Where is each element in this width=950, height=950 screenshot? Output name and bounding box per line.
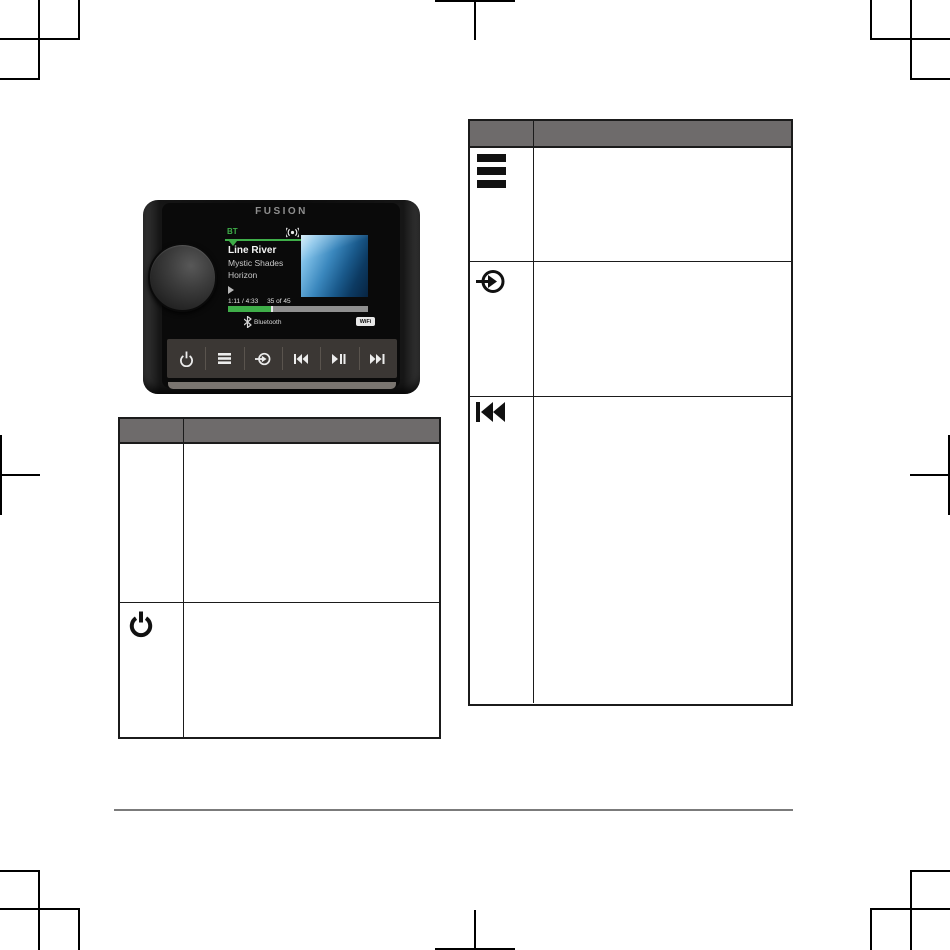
crop-mark	[0, 38, 80, 40]
crop-mark	[870, 0, 872, 40]
skip-back-icon	[476, 402, 505, 422]
play-pause-icon	[332, 354, 346, 364]
device-screen: BT Line River Mystic Shades Horizon 1:11…	[225, 226, 377, 330]
table-header-icon-col	[120, 419, 183, 442]
speaker-icon	[286, 227, 299, 238]
device-button-menu	[205, 339, 243, 378]
source-icon	[476, 267, 506, 296]
progress-bar	[228, 306, 368, 312]
table-cell-icon	[470, 262, 533, 396]
crop-mark	[0, 78, 40, 80]
progress-tick	[271, 306, 273, 312]
crop-mark	[474, 0, 476, 40]
controls-table-left	[118, 417, 441, 739]
crop-mark	[0, 474, 40, 476]
bluetooth-icon	[244, 316, 252, 328]
bluetooth-label: Bluetooth	[254, 319, 281, 326]
menu-icon	[477, 154, 506, 188]
crop-mark	[0, 908, 80, 910]
crop-mark	[910, 474, 950, 476]
volume-knob	[148, 243, 217, 312]
crop-mark	[38, 870, 40, 950]
table-header-row	[120, 419, 439, 444]
table-cell-icon	[470, 397, 533, 703]
device-button-source	[244, 339, 282, 378]
table-cell-icon	[120, 444, 183, 602]
crop-mark	[910, 870, 950, 872]
bluetooth-logo: Bluetooth	[244, 316, 281, 328]
table-header-description-col	[533, 121, 791, 146]
table-row	[120, 603, 439, 737]
device-button-previous	[282, 339, 320, 378]
crop-mark	[910, 0, 912, 80]
track-artist: Mystic Shades	[228, 258, 283, 268]
table-cell-icon	[470, 148, 533, 261]
crop-mark	[0, 870, 40, 872]
play-state-icon	[228, 286, 234, 294]
source-icon	[255, 352, 271, 366]
controls-table-right	[468, 119, 793, 706]
table-cell-description	[183, 444, 439, 602]
device-button-play-pause	[320, 339, 358, 378]
brand-logo: FUSION	[143, 206, 420, 217]
table-header-row	[470, 121, 791, 148]
skip-forward-icon	[370, 354, 385, 364]
table-row	[470, 148, 791, 262]
time-display: 1:11 / 4:33 35 of 45	[228, 298, 291, 305]
crop-mark	[474, 910, 476, 950]
table-row	[470, 262, 791, 397]
table-cell-description	[183, 603, 439, 737]
crop-mark	[38, 0, 40, 80]
table-row	[120, 444, 439, 603]
crop-mark	[870, 38, 950, 40]
screen-progress-fill	[228, 306, 271, 312]
crop-mark	[910, 78, 950, 80]
table-header-icon-col	[470, 121, 533, 146]
device-figure: FUSION BT Line River Mystic Shades Horiz…	[143, 200, 420, 394]
track-album: Horizon	[228, 270, 257, 280]
power-icon	[179, 351, 194, 367]
crop-mark	[870, 908, 872, 950]
time-elapsed-total: 1:11 / 4:33	[228, 298, 258, 305]
skip-back-icon	[294, 354, 308, 364]
manual-page: FUSION BT Line River Mystic Shades Horiz…	[0, 0, 950, 950]
table-cell-description	[533, 262, 791, 396]
table-header-description-col	[183, 419, 439, 442]
table-cell-description	[533, 397, 791, 703]
menu-icon	[218, 353, 231, 364]
source-tab-underline	[225, 239, 308, 241]
device-button-next	[359, 339, 397, 378]
wifi-badge: WiFi	[356, 317, 375, 326]
album-art	[301, 235, 368, 297]
table-cell-icon	[120, 603, 183, 737]
crop-mark	[78, 0, 80, 40]
crop-mark	[910, 870, 912, 950]
device-button-power	[167, 339, 205, 378]
crop-mark	[78, 908, 80, 950]
power-icon	[129, 610, 153, 638]
wifi-label: WiFi	[360, 319, 372, 325]
track-title: Line River	[228, 245, 276, 256]
device-bottom-edge	[168, 382, 396, 389]
track-position: 35 of 45	[267, 298, 291, 305]
footer-rule	[114, 809, 793, 811]
table-cell-description	[533, 148, 791, 261]
device-button-bar	[167, 339, 397, 378]
source-label: BT	[227, 227, 238, 236]
table-row	[470, 397, 791, 703]
